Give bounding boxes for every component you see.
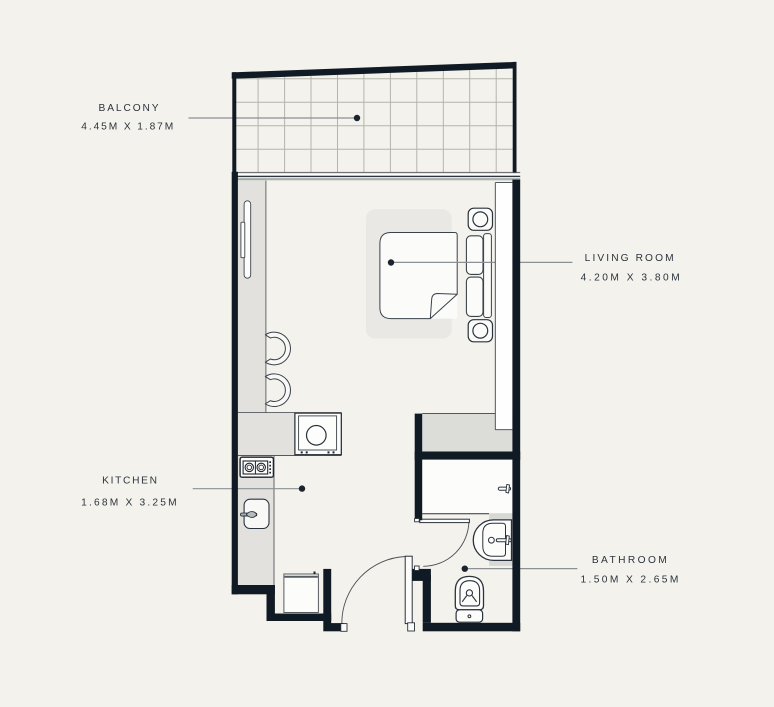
svg-text:4.20M X 3.80M: 4.20M X 3.80M — [581, 273, 683, 284]
svg-text:LIVING ROOM: LIVING ROOM — [585, 253, 676, 264]
svg-text:BALCONY: BALCONY — [99, 103, 161, 114]
svg-text:BATHROOM: BATHROOM — [592, 555, 669, 566]
svg-text:1.68M X 3.25M: 1.68M X 3.25M — [81, 497, 179, 508]
svg-text:KITCHEN: KITCHEN — [102, 476, 159, 487]
svg-text:1.50M X 2.65M: 1.50M X 2.65M — [580, 574, 680, 585]
svg-text:4.45M X 1.87M: 4.45M X 1.87M — [81, 121, 175, 132]
